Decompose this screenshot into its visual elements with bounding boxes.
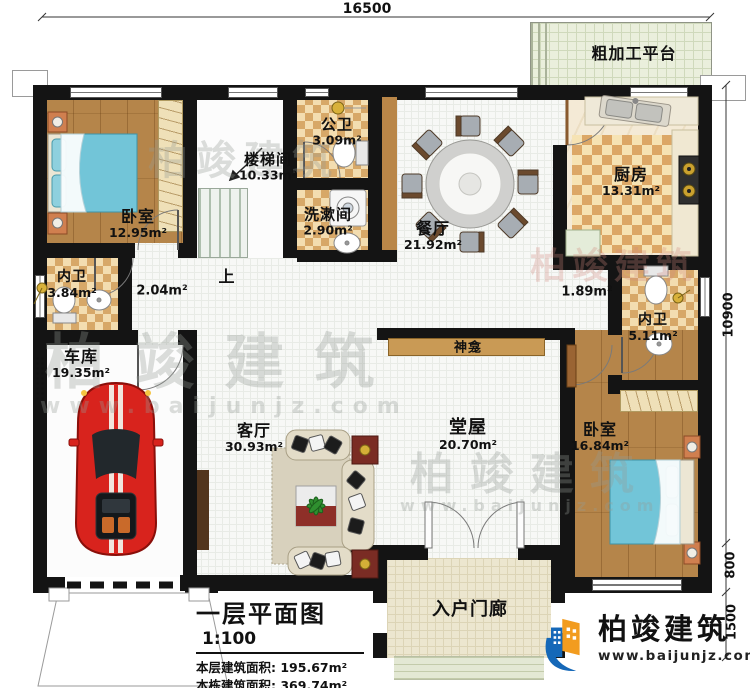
label-porch: 入户门廊 bbox=[432, 600, 508, 620]
window bbox=[592, 579, 682, 591]
floor-plan: 柏竣建筑 柏竣建筑 柏竣建筑 www.baijunjz.com 柏竣建筑 www… bbox=[0, 0, 750, 688]
wall bbox=[183, 97, 197, 245]
label-platform: 粗加工平台 bbox=[591, 45, 676, 63]
window bbox=[35, 275, 45, 318]
dimension-right-offset: 800 bbox=[724, 551, 739, 578]
window bbox=[70, 87, 162, 98]
wall bbox=[368, 97, 382, 262]
logo-icon bbox=[538, 612, 590, 676]
company-logo: 柏竣建筑 www.baijunjz.com bbox=[538, 612, 750, 676]
label-bedroom2: 卧室16.84m² bbox=[571, 421, 629, 453]
garage-wall-vent bbox=[35, 356, 46, 402]
label-stairwell: 楼梯间10.33m² bbox=[239, 152, 297, 183]
label-washroom: 洗漱间2.90m² bbox=[303, 207, 352, 238]
window bbox=[630, 87, 688, 98]
wall bbox=[33, 243, 135, 258]
floor-bedroom2 bbox=[575, 330, 698, 577]
label-shrine: 神龛 bbox=[454, 338, 482, 357]
label-bedroom1: 卧室12.95m² bbox=[109, 208, 167, 240]
label-public-bath: 公卫3.09m² bbox=[312, 117, 361, 148]
dimension-top: 16500 bbox=[343, 1, 392, 17]
wall bbox=[553, 255, 712, 270]
wall bbox=[698, 97, 712, 593]
label-vestibule-area: 1.89m² bbox=[561, 286, 612, 301]
label-living: 客厅30.93m² bbox=[225, 422, 283, 454]
wall bbox=[180, 575, 385, 591]
window bbox=[425, 87, 518, 98]
wall bbox=[178, 243, 197, 258]
wall bbox=[350, 545, 428, 560]
label-ensuite1: 内卫3.84m² bbox=[47, 270, 96, 300]
label-corridor-area: 2.04m² bbox=[136, 285, 187, 300]
label-ensuite2: 内卫5.11m² bbox=[628, 313, 677, 343]
label-up: 上 bbox=[218, 268, 235, 286]
label-dining: 餐厅21.92m² bbox=[404, 220, 462, 252]
platform-steps bbox=[531, 23, 547, 89]
plan-scale: 1:100 bbox=[202, 629, 256, 649]
tv-cabinet bbox=[197, 470, 209, 550]
logo-url: www.baijunjz.com bbox=[598, 648, 750, 664]
plan-title: 一层平面图 bbox=[196, 600, 326, 628]
wood-partition bbox=[382, 97, 397, 262]
title-block: 一层平面图 1:100 本层建筑面积: 195.67m² 本栋建筑面积: 369… bbox=[196, 594, 382, 688]
wall bbox=[297, 250, 397, 262]
label-hall: 堂屋20.70m² bbox=[439, 418, 497, 452]
window bbox=[700, 277, 710, 317]
dimension-right-main: 10900 bbox=[722, 292, 737, 337]
wall bbox=[33, 330, 138, 345]
label-garage: 车库19.35m² bbox=[52, 348, 110, 380]
wall bbox=[183, 330, 197, 577]
wall bbox=[553, 145, 567, 255]
wardrobe-bedroom2 bbox=[620, 390, 698, 412]
wall bbox=[118, 258, 132, 332]
window bbox=[228, 87, 278, 98]
wall bbox=[33, 577, 65, 593]
stair-treads bbox=[198, 188, 248, 258]
wall bbox=[297, 178, 368, 190]
window bbox=[305, 88, 329, 97]
label-kitchen: 厨房13.31m² bbox=[602, 166, 660, 198]
porch-steps bbox=[394, 656, 544, 680]
logo-name: 柏竣建筑 bbox=[598, 612, 750, 646]
